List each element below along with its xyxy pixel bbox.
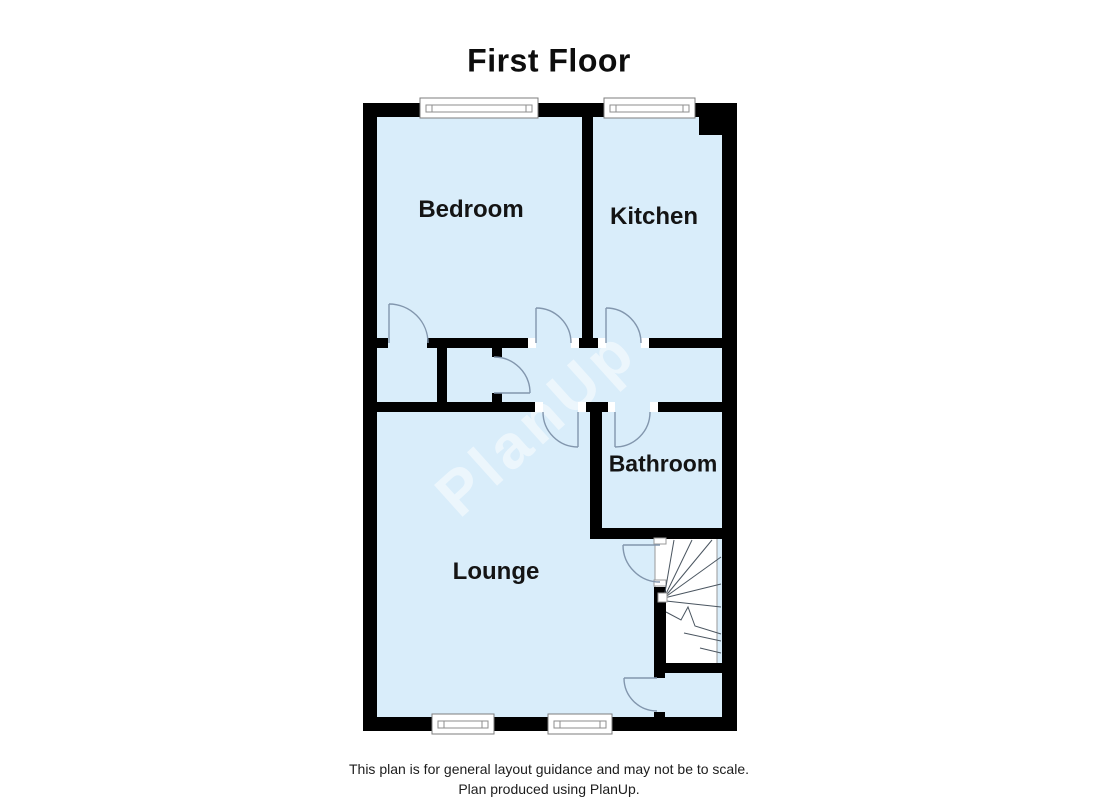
produced-by-text: Plan produced using PlanUp. (458, 781, 639, 797)
window-lounge-left (432, 714, 494, 734)
window-kitchen (604, 98, 695, 118)
window-bedroom (420, 98, 538, 118)
disclaimer-text: This plan is for general layout guidance… (349, 761, 749, 777)
room-label-kitchen: Kitchen (610, 203, 698, 231)
room-label-lounge: Lounge (453, 558, 540, 586)
floor-plan-drawing: PlanUp (0, 0, 1100, 800)
stair-newel-post (658, 593, 667, 602)
window-lounge-right (548, 714, 612, 734)
floor-plan-page: First Floor PlanUp (0, 0, 1100, 800)
room-label-bedroom: Bedroom (418, 196, 523, 224)
room-label-bathroom: Bathroom (609, 451, 718, 478)
